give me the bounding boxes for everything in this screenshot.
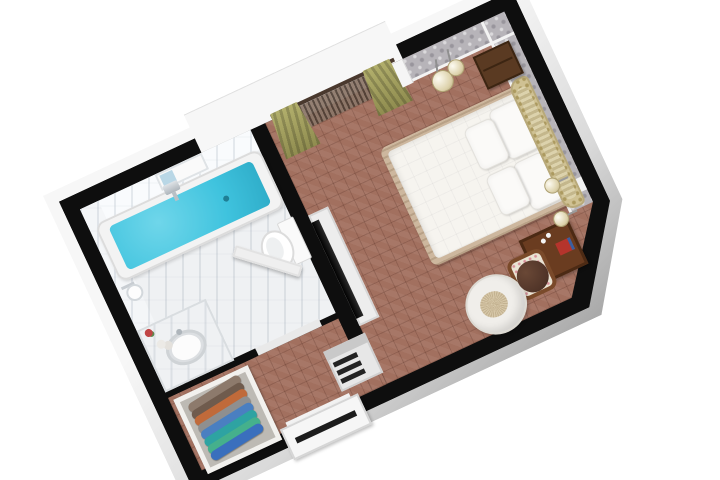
apartment-plan [59,0,647,480]
floor-plan-render [0,0,720,480]
